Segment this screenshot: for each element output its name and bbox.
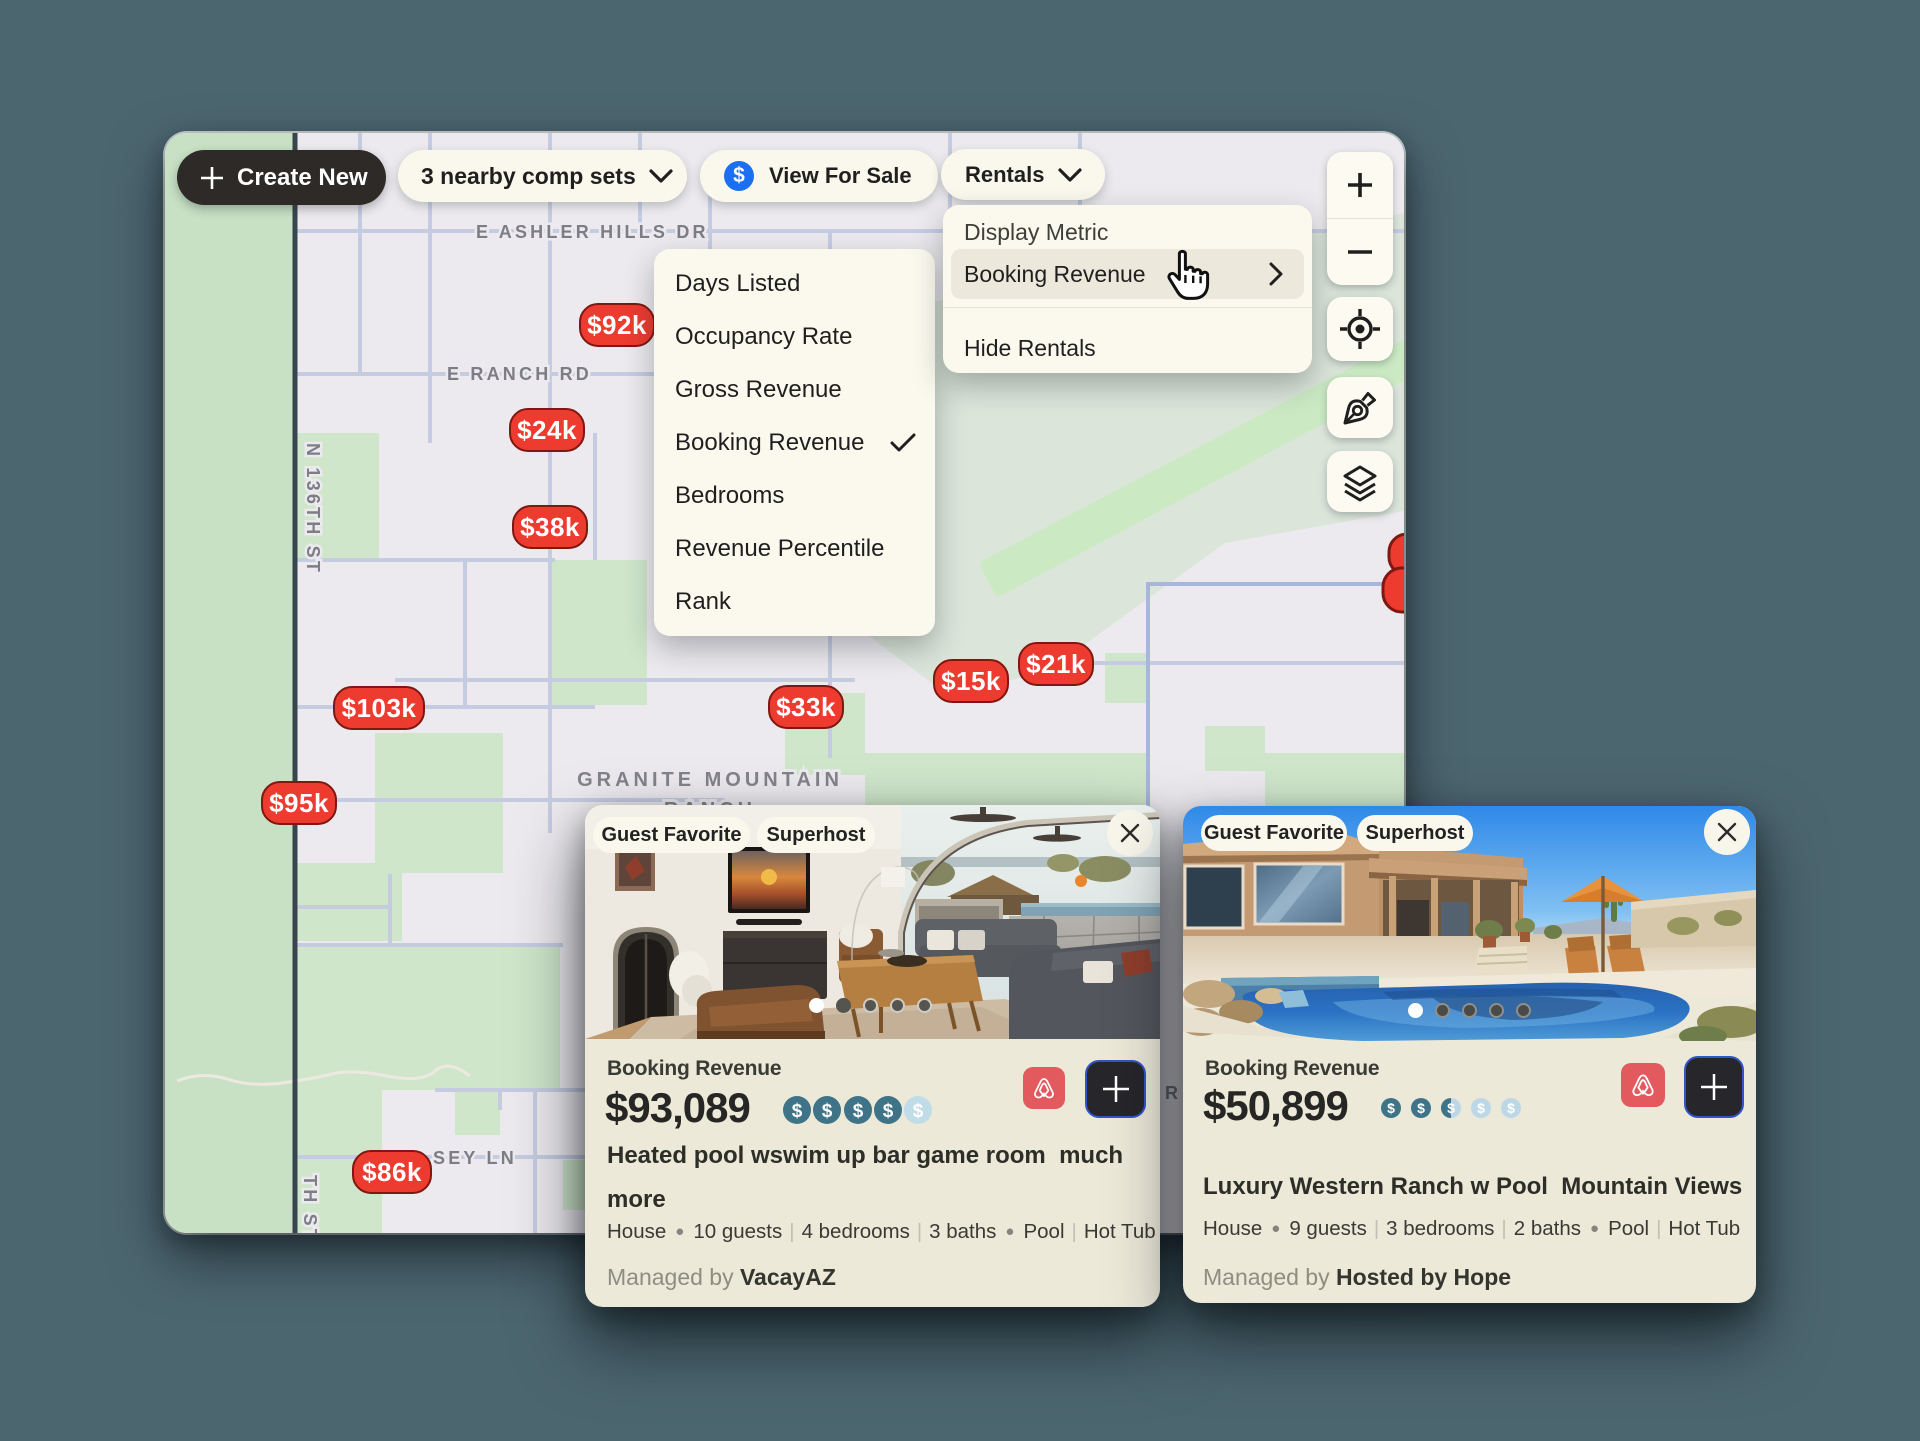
svg-text:$: $: [1387, 1100, 1395, 1116]
svg-text:$: $: [1477, 1100, 1485, 1116]
svg-text:$: $: [1507, 1100, 1515, 1116]
svg-text:$: $: [1417, 1100, 1425, 1116]
svg-text:$: $: [792, 1101, 803, 1122]
svg-text:$: $: [853, 1101, 864, 1122]
svg-text:GRANITE MOUNTAIN: GRANITE MOUNTAIN: [577, 769, 843, 791]
svg-text:$: $: [822, 1101, 833, 1122]
svg-text:SEY LN: SEY LN: [433, 1148, 517, 1168]
svg-text:E ASHLER HILLS DR: E ASHLER HILLS DR: [476, 222, 709, 242]
svg-text:N 136TH ST: N 136TH ST: [303, 443, 323, 575]
svg-text:TH ST: TH ST: [300, 1175, 320, 1233]
svg-text:E RANCH RD: E RANCH RD: [447, 364, 592, 384]
svg-text:$: $: [913, 1101, 924, 1122]
svg-text:$: $: [1447, 1100, 1455, 1116]
svg-text:R: R: [1165, 1083, 1181, 1103]
svg-text:$: $: [883, 1101, 894, 1122]
